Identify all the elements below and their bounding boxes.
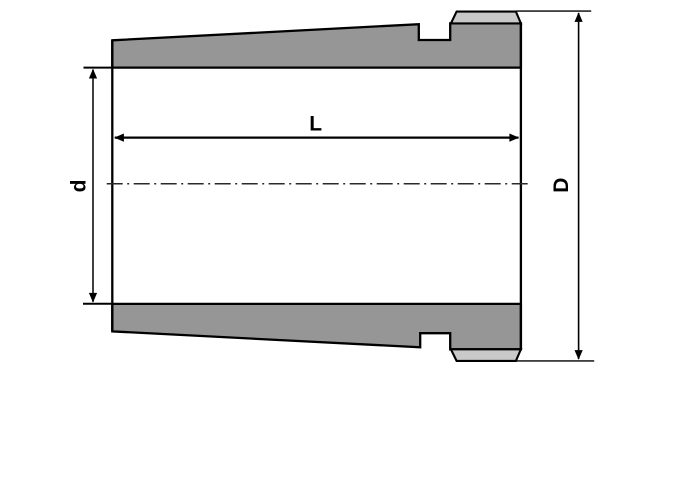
svg-text:L: L: [309, 113, 322, 136]
svg-text:D: D: [550, 178, 573, 193]
svg-text:d: d: [68, 180, 91, 193]
